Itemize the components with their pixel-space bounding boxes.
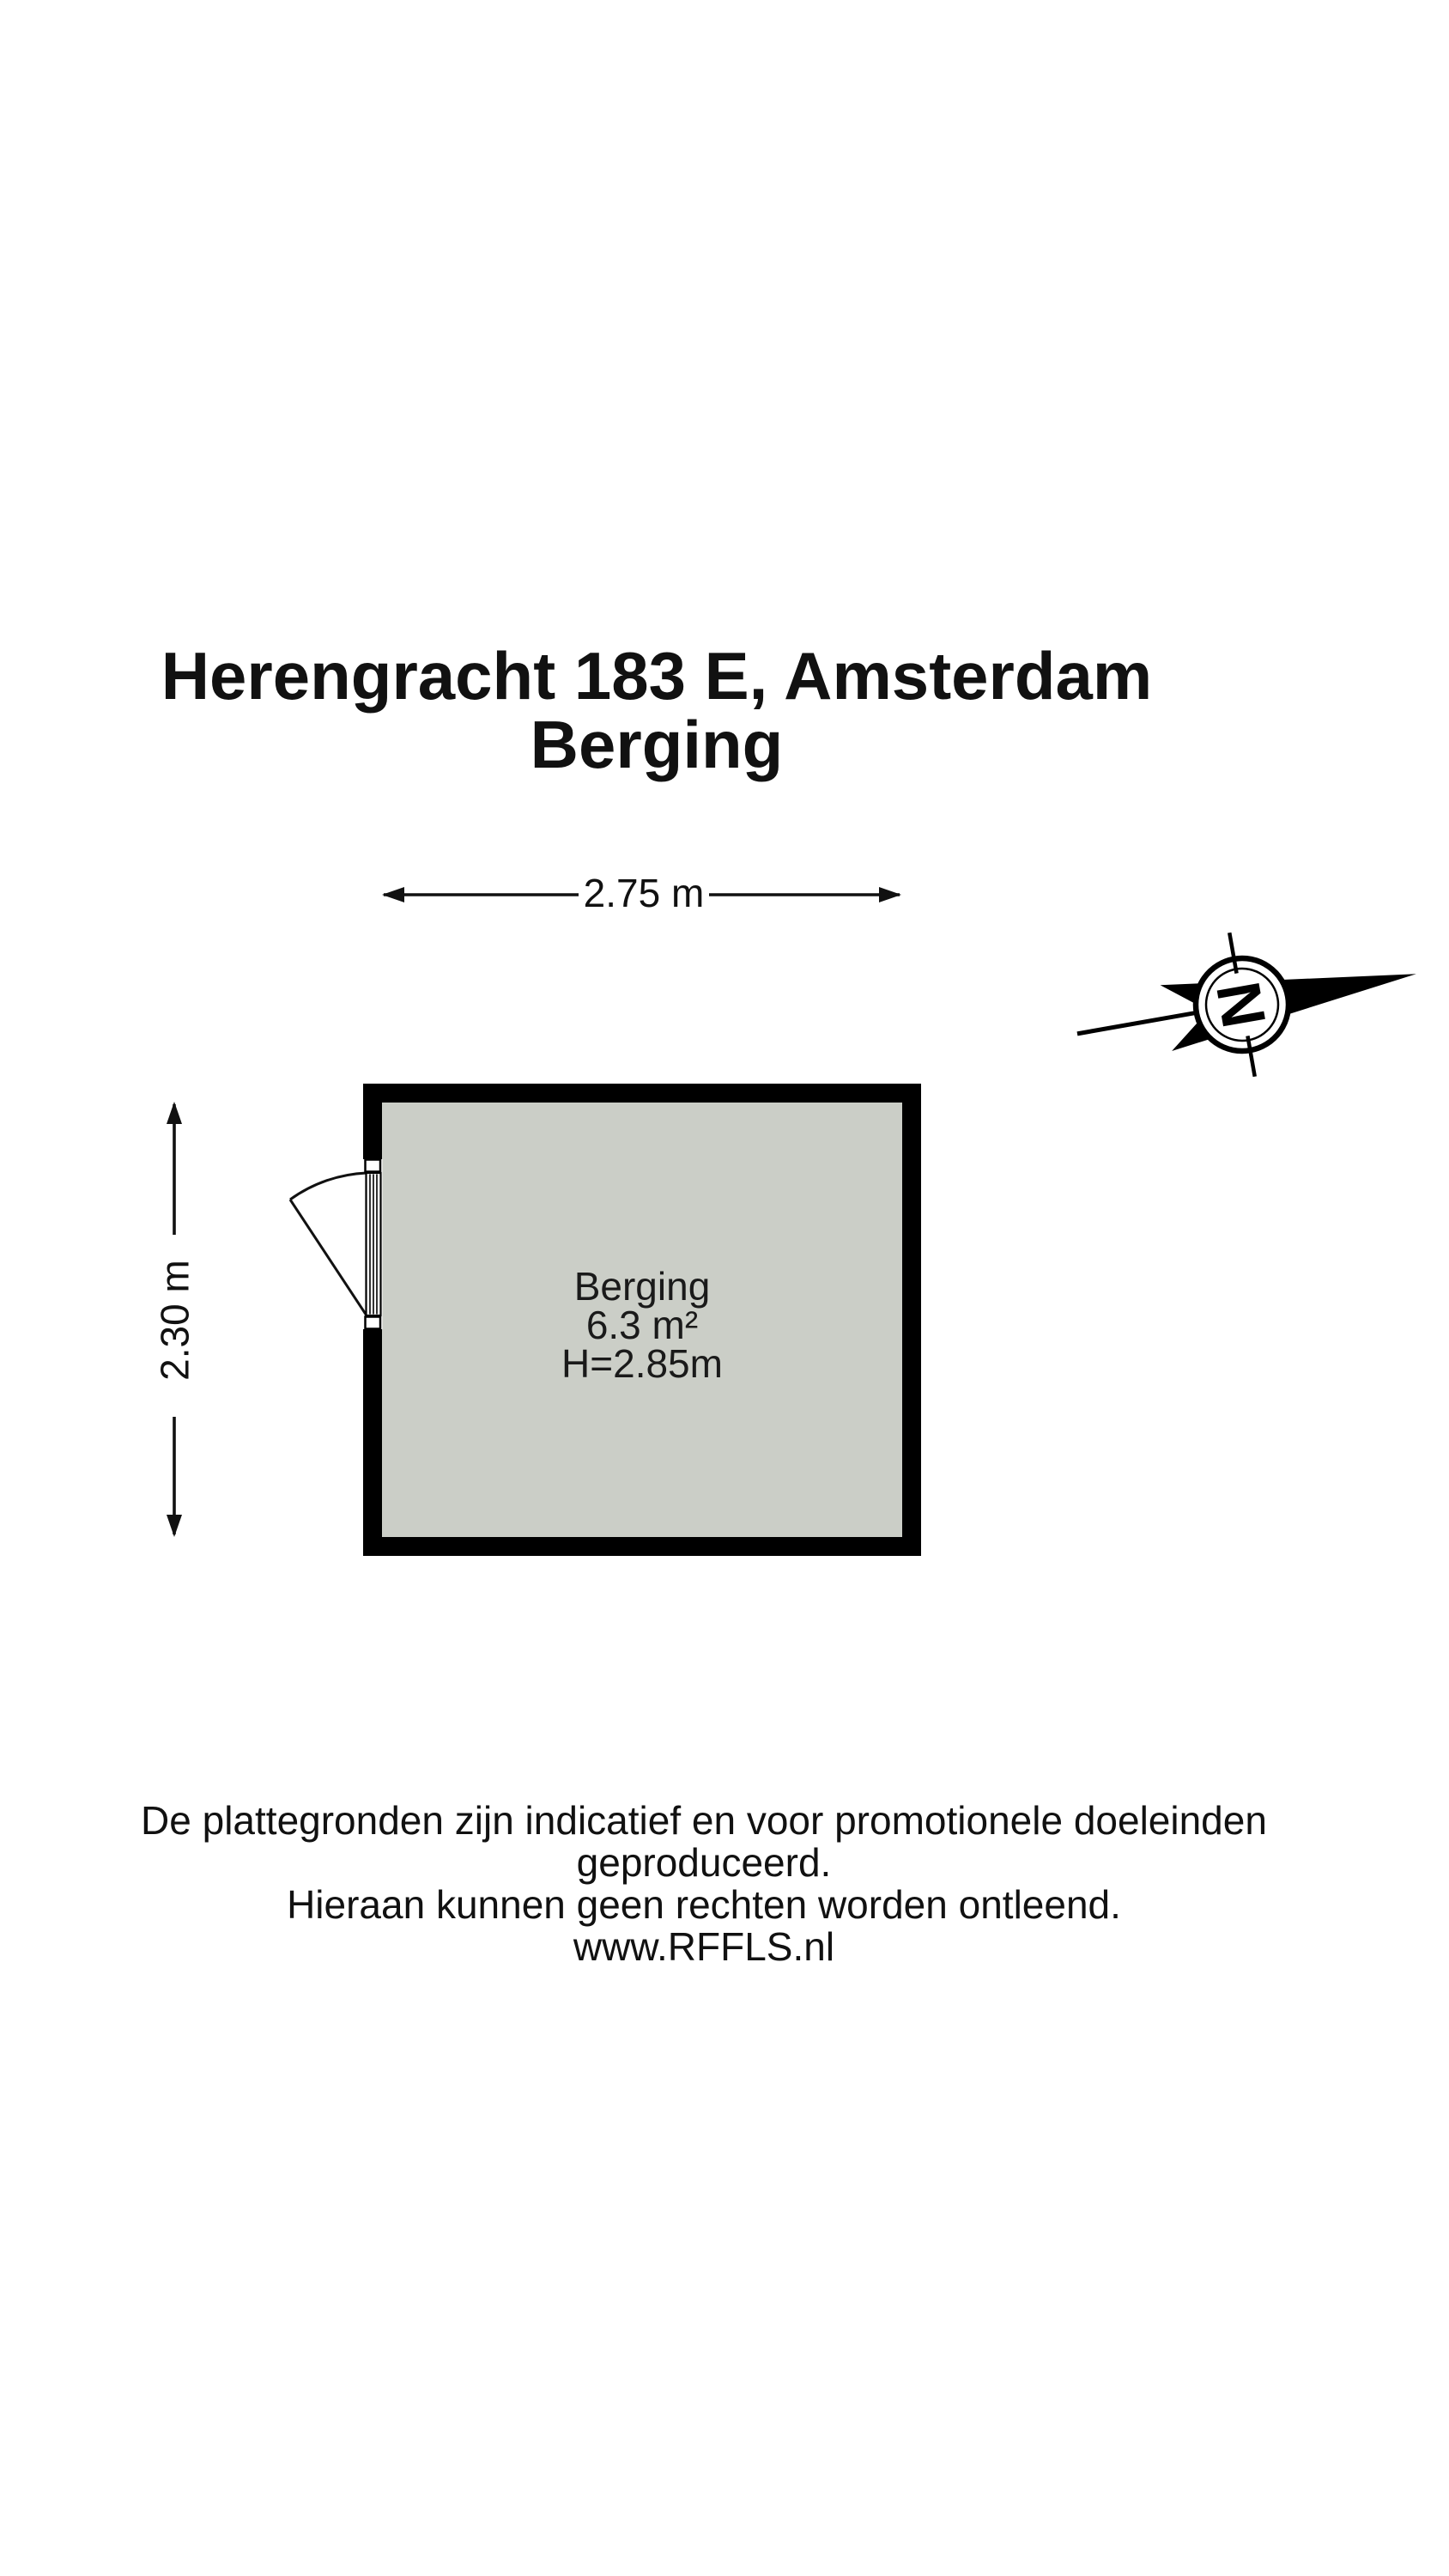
arrowhead-right-icon — [879, 887, 901, 902]
plan-title-address: Herengracht 183 E, Amsterdam — [142, 641, 1172, 710]
disclaimer-website: www.RFFLS.nl — [17, 1926, 1391, 1968]
disclaimer: De plattegronden zijn indicatief en voor… — [17, 1800, 1391, 1968]
room-ceiling-height: H=2.85m — [385, 1345, 900, 1383]
width-dimension-label: 2.75 m — [558, 874, 730, 913]
floorplan-page: N Herengracht 183 E, Amsterdam Berging 2… — [0, 0, 1449, 2576]
disclaimer-line-1: De plattegronden zijn indicatief en voor… — [17, 1800, 1391, 1884]
room-label: Berging 6.3 m² H=2.85m — [385, 1267, 900, 1383]
arrowhead-down-icon — [167, 1515, 182, 1537]
arrowhead-up-icon — [167, 1102, 182, 1124]
disclaimer-line-2: Hieraan kunnen geen rechten worden ontle… — [17, 1884, 1391, 1926]
room-area: 6.3 m² — [385, 1306, 900, 1345]
door-open-leaf-line — [290, 1200, 367, 1315]
compass-south-needle — [1077, 1012, 1202, 1034]
door-jamb-top — [366, 1160, 381, 1172]
height-dimension-label: 2.30 m — [156, 1235, 195, 1406]
plan-title-floor: Berging — [142, 710, 1172, 779]
door — [290, 1159, 383, 1329]
door-jamb-bottom — [366, 1317, 381, 1329]
plan-title: Herengracht 183 E, Amsterdam Berging — [142, 641, 1172, 779]
arrowhead-left-icon — [382, 887, 404, 902]
door-swing-arc — [290, 1173, 367, 1200]
room-name: Berging — [385, 1267, 900, 1306]
north-compass: N — [1064, 902, 1428, 1106]
